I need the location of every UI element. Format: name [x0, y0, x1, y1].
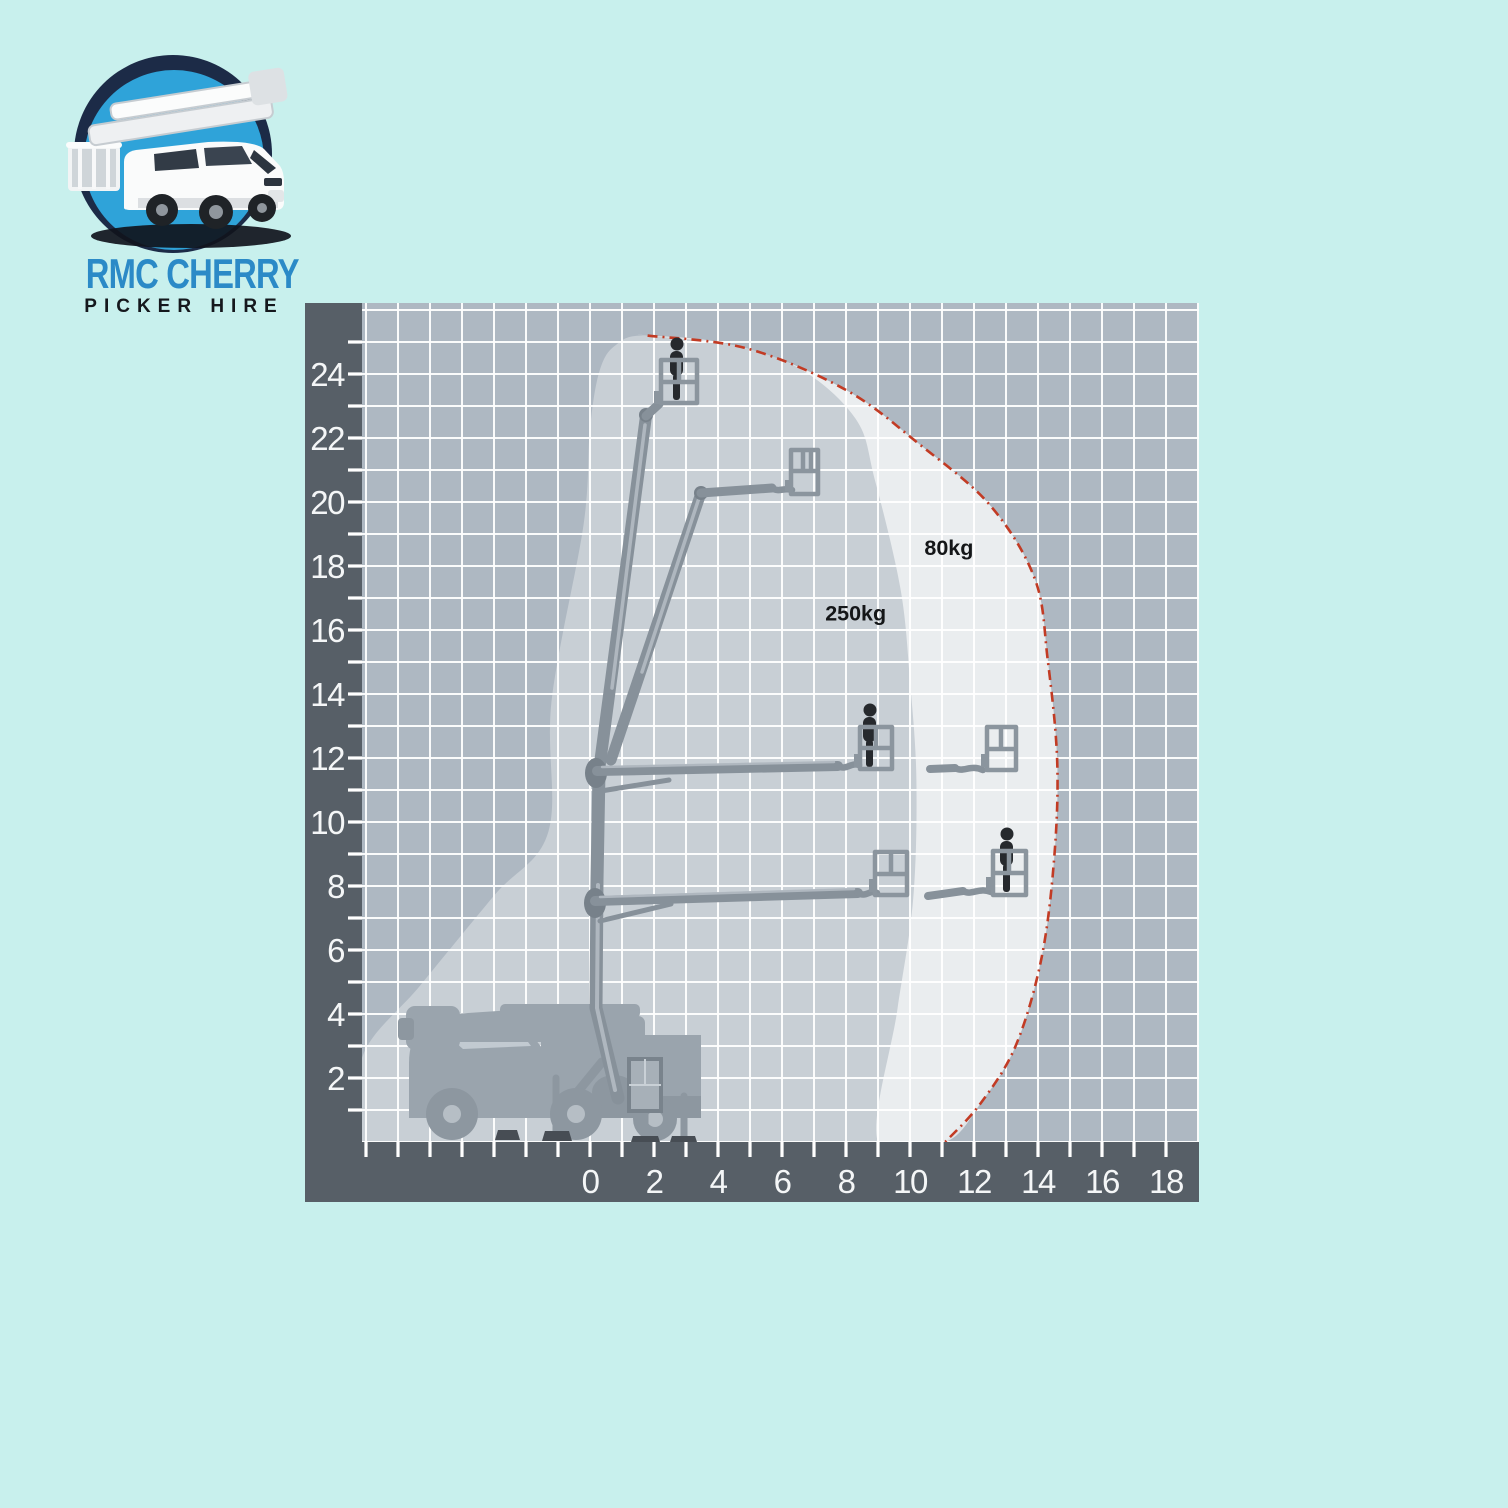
y-tick — [348, 1012, 362, 1015]
truck-shadow — [91, 224, 291, 248]
x-tick — [620, 1142, 623, 1157]
y-axis-label-8: 8 — [327, 868, 344, 905]
jib-8m — [928, 891, 963, 896]
y-tick — [348, 1108, 362, 1111]
x-tick — [492, 1142, 495, 1157]
x-tick — [1068, 1142, 1071, 1157]
y-axis-label-4: 4 — [327, 996, 345, 1033]
y-tick — [348, 596, 362, 599]
y-tick — [348, 756, 362, 759]
x-tick — [1164, 1142, 1167, 1157]
y-tick — [348, 404, 362, 407]
x-tick — [972, 1142, 975, 1157]
y-tick — [348, 660, 362, 663]
y-axis-label-6: 6 — [327, 932, 344, 969]
logo-title: RMC CHERRY — [86, 250, 283, 298]
page-background: RMC CHERRY PICKER HIRE — [0, 0, 1508, 1508]
x-axis-band — [305, 1142, 1199, 1202]
x-tick — [1036, 1142, 1039, 1157]
logo-subtitle: PICKER HIRE — [58, 296, 310, 318]
y-tick — [348, 852, 362, 855]
company-logo: RMC CHERRY PICKER HIRE — [58, 50, 310, 300]
y-tick — [348, 628, 362, 631]
zone-label-80kg: 80kg — [924, 536, 973, 560]
y-tick — [348, 948, 362, 951]
y-tick — [348, 788, 362, 791]
x-axis-label-12: 12 — [957, 1163, 991, 1200]
x-tick — [460, 1142, 463, 1157]
y-axis-label-24: 24 — [310, 356, 345, 393]
x-tick — [876, 1142, 879, 1157]
x-tick — [524, 1142, 527, 1157]
reach-diagram-canvas: 250kg 80kg 24681012141618202224 02468101… — [305, 303, 1199, 1202]
y-tick — [348, 500, 362, 503]
x-tick — [780, 1142, 783, 1157]
x-tick — [364, 1142, 367, 1157]
y-tick — [348, 532, 362, 535]
y-tick — [348, 884, 362, 887]
y-tick — [348, 980, 362, 983]
y-axis-label-22: 22 — [310, 420, 344, 457]
jib-12m — [930, 768, 955, 769]
y-tick — [348, 1044, 362, 1047]
x-tick — [1004, 1142, 1007, 1157]
y-tick — [348, 1076, 362, 1079]
x-tick — [844, 1142, 847, 1157]
outrigger-foot — [495, 1130, 520, 1140]
y-tick — [348, 372, 362, 375]
x-axis-label-0: 0 — [582, 1163, 600, 1200]
x-tick — [908, 1142, 911, 1157]
y-tick — [348, 724, 362, 727]
x-tick — [716, 1142, 719, 1157]
x-axis-label-14: 14 — [1021, 1163, 1056, 1200]
y-axis-label-18: 18 — [310, 548, 344, 585]
x-tick — [652, 1142, 655, 1157]
zone-label-250kg: 250kg — [825, 601, 886, 625]
x-tick — [940, 1142, 943, 1157]
y-axis-label-12: 12 — [310, 740, 344, 777]
x-tick — [812, 1142, 815, 1157]
x-tick — [588, 1142, 591, 1157]
x-tick — [1132, 1142, 1135, 1157]
y-axis-label-2: 2 — [327, 1060, 344, 1097]
x-axis-label-8: 8 — [838, 1163, 855, 1200]
x-tick — [556, 1142, 559, 1157]
x-tick — [1100, 1142, 1103, 1157]
x-axis-label-10: 10 — [893, 1163, 928, 1200]
y-axis-label-20: 20 — [310, 484, 345, 521]
x-tick — [684, 1142, 687, 1157]
x-axis-label-4: 4 — [710, 1163, 728, 1200]
x-tick — [428, 1142, 431, 1157]
y-axis-label-10: 10 — [310, 804, 345, 841]
reach-diagram: 250kg 80kg 24681012141618202224 02468101… — [305, 303, 1199, 1202]
x-axis-label-16: 16 — [1085, 1163, 1119, 1200]
stowed-basket — [629, 1059, 661, 1111]
x-axis-label-6: 6 — [774, 1163, 791, 1200]
x-axis-label-18: 18 — [1149, 1163, 1183, 1200]
logo-illustration — [58, 50, 310, 262]
y-tick — [348, 916, 362, 919]
y-tick — [348, 436, 362, 439]
x-tick — [396, 1142, 399, 1157]
x-axis-label-2: 2 — [646, 1163, 663, 1200]
y-axis-label-14: 14 — [310, 676, 345, 713]
outrigger-foot — [542, 1131, 572, 1141]
y-tick — [348, 692, 362, 695]
y-axis-label-16: 16 — [310, 612, 344, 649]
y-tick — [348, 564, 362, 567]
y-tick — [348, 468, 362, 471]
y-tick — [348, 820, 362, 823]
x-tick — [748, 1142, 751, 1157]
y-tick — [348, 340, 362, 343]
